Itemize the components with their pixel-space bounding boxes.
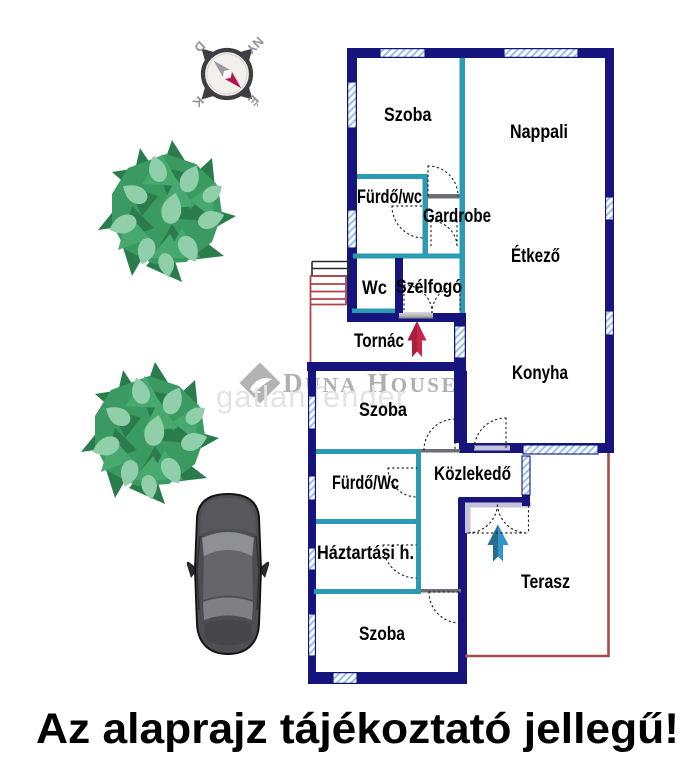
svg-text:Az alaprajz tájékoztató jelleg: Az alaprajz tájékoztató jellegű! — [36, 705, 679, 753]
svg-text:Szélfogó: Szélfogó — [396, 277, 462, 298]
svg-text:Szoba: Szoba — [359, 624, 405, 645]
svg-text:Terasz: Terasz — [521, 572, 570, 593]
svg-text:Fürdő/Wc: Fürdő/Wc — [332, 473, 399, 494]
svg-text:Fürdő/wc: Fürdő/wc — [357, 187, 422, 208]
svg-text:Wc: Wc — [362, 278, 387, 299]
svg-text:Tornác: Tornác — [354, 331, 404, 352]
svg-text:Háztartási h.: Háztartási h. — [317, 543, 414, 564]
svg-text:Gardrobe: Gardrobe — [423, 206, 491, 227]
svg-text:Étkező: Étkező — [511, 245, 560, 267]
svg-text:Közlekedő: Közlekedő — [434, 464, 511, 485]
svg-text:Nappali: Nappali — [510, 122, 568, 143]
svg-text:Szoba: Szoba — [384, 105, 432, 126]
svg-text:Szoba: Szoba — [359, 400, 407, 421]
svg-text:Konyha: Konyha — [512, 363, 568, 384]
